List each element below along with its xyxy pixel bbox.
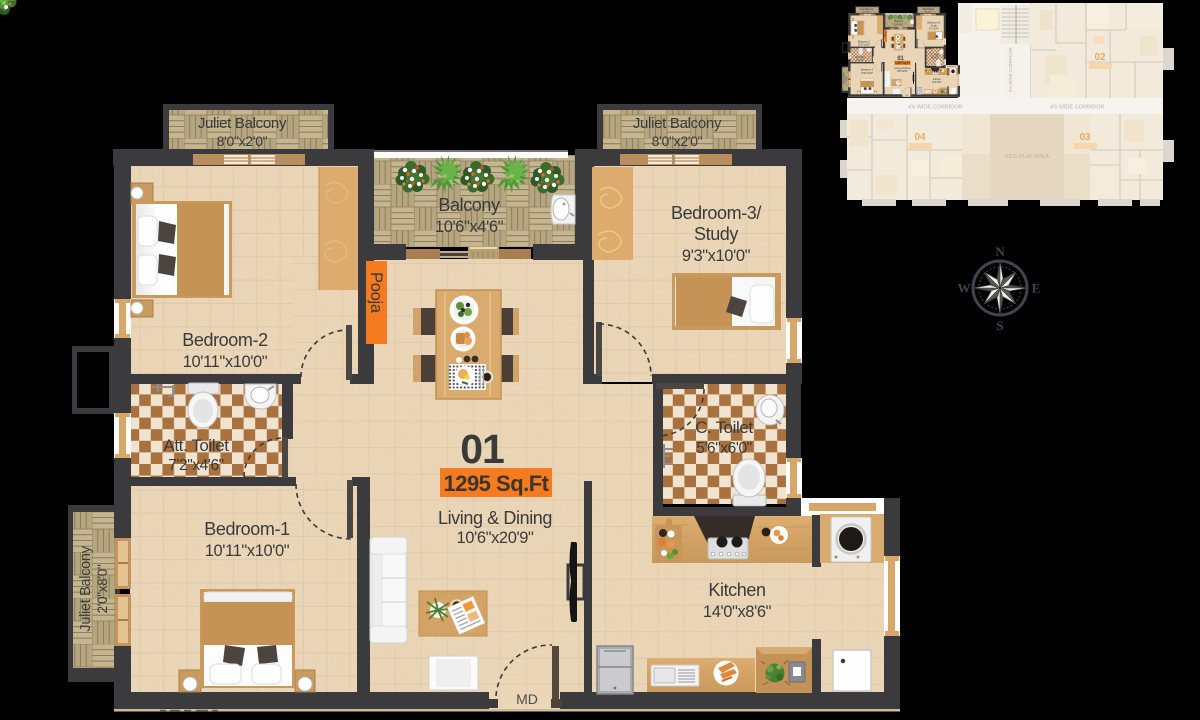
svg-text:9'3"x10'0": 9'3"x10'0" <box>682 247 751 265</box>
svg-text:10'6"x20'9": 10'6"x20'9" <box>457 529 534 547</box>
svg-text:Att. Toilet: Att. Toilet <box>163 436 229 455</box>
svg-text:14'0"x8'6": 14'0"x8'6" <box>703 603 772 621</box>
svg-text:Juliet Balcony: Juliet Balcony <box>78 545 94 631</box>
svg-text:4'6 WIDE CORRIDOR: 4'6 WIDE CORRIDOR <box>1050 105 1105 111</box>
svg-text:03: 03 <box>1079 132 1091 143</box>
svg-text:E: E <box>1032 281 1041 296</box>
svg-text:S: S <box>996 318 1003 333</box>
svg-text:7'2"x4'6": 7'2"x4'6" <box>168 457 224 474</box>
svg-text:W: W <box>958 281 971 296</box>
svg-text:4'6 WIDE CORRIDOR: 4'6 WIDE CORRIDOR <box>908 105 963 111</box>
svg-text:N: N <box>995 244 1005 259</box>
svg-text:Juliet Balcony: Juliet Balcony <box>198 115 287 132</box>
svg-text:Study: Study <box>694 224 738 244</box>
svg-text:5'6"x6'0": 5'6"x6'0" <box>696 440 752 457</box>
svg-text:04: 04 <box>914 132 926 143</box>
svg-text:5'5 WIDE CORRIDOR: 5'5 WIDE CORRIDOR <box>1008 47 1013 92</box>
svg-text:KIDS PLAY AREA: KIDS PLAY AREA <box>1005 154 1049 160</box>
svg-text:Bedroom-2: Bedroom-2 <box>182 330 268 350</box>
svg-text:MD: MD <box>516 691 538 707</box>
svg-text:Living & Dining: Living & Dining <box>438 508 552 528</box>
svg-text:2'0"x8'0": 2'0"x8'0" <box>95 564 110 613</box>
svg-text:1295 Sq.Ft: 1295 Sq.Ft <box>443 471 549 496</box>
svg-text:Bedroom-3/: Bedroom-3/ <box>671 203 761 223</box>
svg-text:01: 01 <box>460 426 504 472</box>
svg-text:Kitchen: Kitchen <box>708 580 765 600</box>
svg-text:Pooja: Pooja <box>367 272 385 314</box>
svg-text:10'11"x10'0": 10'11"x10'0" <box>183 353 268 371</box>
svg-text:C. Toilet: C. Toilet <box>695 418 753 437</box>
svg-text:8'0"x2'0": 8'0"x2'0" <box>652 133 703 149</box>
svg-text:10'11"x10'0": 10'11"x10'0" <box>205 542 290 560</box>
svg-text:8'0"x2'0": 8'0"x2'0" <box>217 133 268 149</box>
svg-text:Balcony: Balcony <box>438 195 500 215</box>
svg-text:Bedroom-1: Bedroom-1 <box>204 519 290 539</box>
svg-text:10'6"x4'6": 10'6"x4'6" <box>435 218 504 236</box>
svg-text:Juliet Balcony: Juliet Balcony <box>633 115 722 132</box>
svg-text:02: 02 <box>1094 52 1106 63</box>
